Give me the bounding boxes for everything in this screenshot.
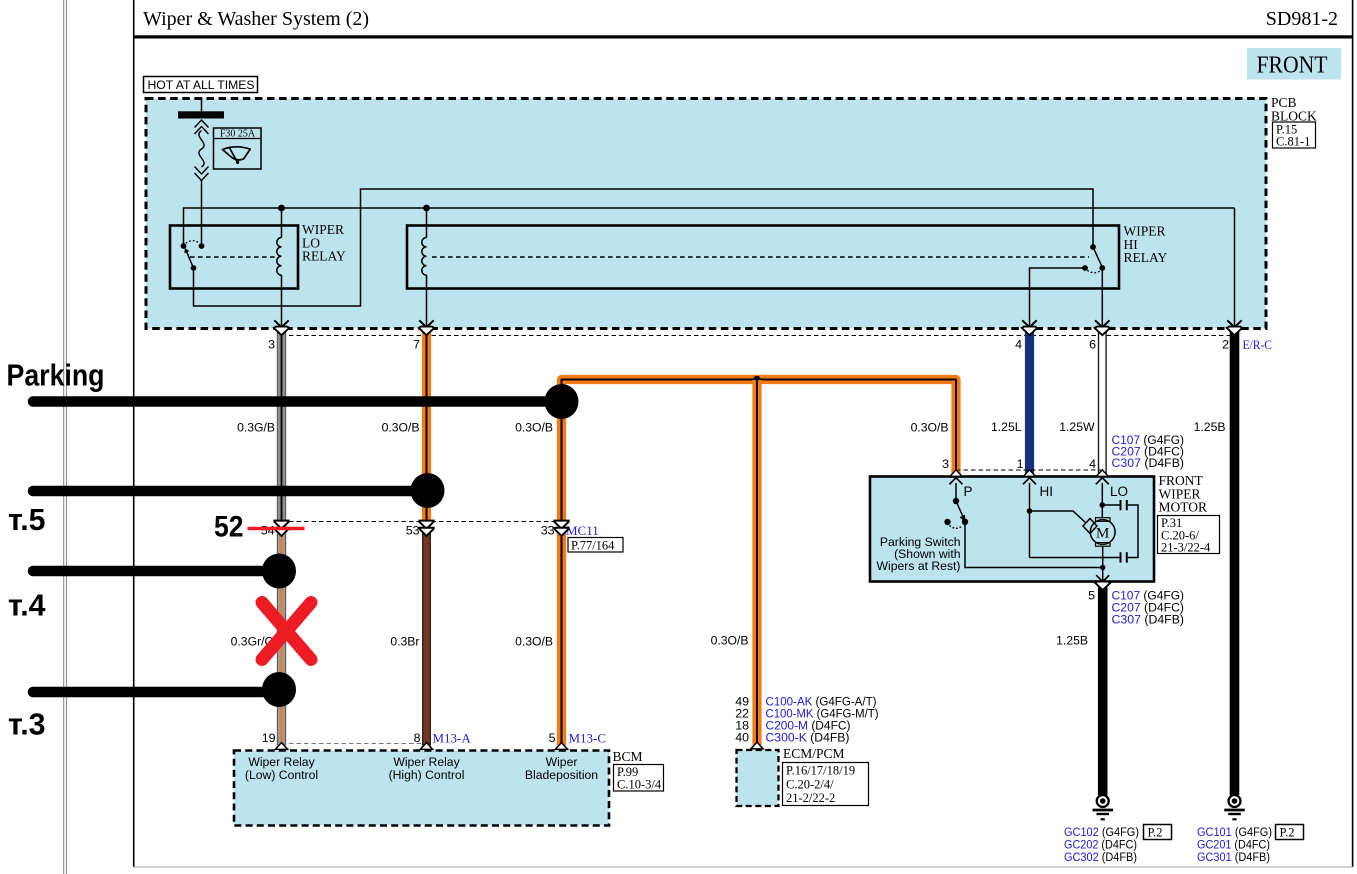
svg-text:HOT AT ALL TIMES: HOT AT ALL TIMES xyxy=(148,78,255,92)
svg-text:Wiper Relay: Wiper Relay xyxy=(393,755,460,769)
svg-text:0.3Br: 0.3Br xyxy=(390,635,419,649)
svg-text:P: P xyxy=(964,484,973,499)
svg-text:RELAY: RELAY xyxy=(1124,250,1168,265)
svg-text:M: M xyxy=(1096,526,1109,542)
svg-text:1.25W: 1.25W xyxy=(1059,420,1095,434)
svg-text:BCM: BCM xyxy=(613,749,643,764)
svg-text:4: 4 xyxy=(1015,338,1022,352)
svg-text:C.81-1: C.81-1 xyxy=(1276,135,1310,149)
svg-text:Bladeposition: Bladeposition xyxy=(525,768,598,782)
svg-text:0.3G/B: 0.3G/B xyxy=(237,421,275,435)
svg-text:C307 (D4FB): C307 (D4FB) xyxy=(1112,613,1185,627)
svg-text:33: 33 xyxy=(541,524,555,538)
svg-text:Wiper: Wiper xyxy=(546,755,578,769)
svg-text:M13-C: M13-C xyxy=(569,731,607,746)
svg-text:BLOCK: BLOCK xyxy=(1271,109,1317,124)
svg-text:8: 8 xyxy=(414,731,421,745)
svg-text:Wiper & Washer System (2): Wiper & Washer System (2) xyxy=(143,8,369,30)
svg-text:C.10-3/4: C.10-3/4 xyxy=(617,778,662,792)
svg-text:E/R-C: E/R-C xyxy=(1243,337,1273,352)
svg-text:7: 7 xyxy=(413,338,420,352)
svg-text:3: 3 xyxy=(942,457,949,471)
svg-text:1.25B: 1.25B xyxy=(1056,634,1088,648)
svg-text:C.20-2/4/: C.20-2/4/ xyxy=(786,778,834,792)
svg-text:1: 1 xyxy=(1017,457,1024,471)
svg-text:1.25B: 1.25B xyxy=(1194,420,1226,434)
svg-text:P.2: P.2 xyxy=(1148,826,1163,840)
svg-text:FRONT: FRONT xyxy=(1257,52,1328,79)
svg-text:40: 40 xyxy=(735,731,749,745)
svg-text:LO: LO xyxy=(1110,484,1128,499)
svg-text:P.77/164: P.77/164 xyxy=(571,539,615,553)
svg-text:M13-A: M13-A xyxy=(433,731,472,746)
svg-text:MOTOR: MOTOR xyxy=(1159,500,1208,515)
svg-text:ECM/PCM: ECM/PCM xyxy=(783,746,845,761)
svg-text:(High) Control: (High) Control xyxy=(389,768,465,782)
svg-text:Wiper Relay: Wiper Relay xyxy=(248,755,315,769)
svg-text:5: 5 xyxy=(1088,589,1095,603)
svg-text:19: 19 xyxy=(262,731,276,745)
svg-text:0.3O/B: 0.3O/B xyxy=(515,635,553,649)
svg-text:21-2/22-2: 21-2/22-2 xyxy=(786,791,835,805)
svg-text:6: 6 xyxy=(1089,338,1096,352)
svg-text:MC11: MC11 xyxy=(566,523,599,538)
svg-text:0.3O/B: 0.3O/B xyxy=(711,634,749,648)
svg-text:Wipers at Rest): Wipers at Rest) xyxy=(877,559,961,573)
svg-text:SD981-2: SD981-2 xyxy=(1266,8,1338,30)
svg-text:F30 25A: F30 25A xyxy=(220,129,256,140)
svg-text:GC302 (D4FB): GC302 (D4FB) xyxy=(1064,850,1137,864)
svg-text:3: 3 xyxy=(268,338,275,352)
svg-text:0.3O/B: 0.3O/B xyxy=(911,421,949,435)
svg-text:т.4: т.4 xyxy=(8,588,46,623)
svg-text:53: 53 xyxy=(406,524,420,538)
svg-text:GC301 (D4FB): GC301 (D4FB) xyxy=(1197,850,1270,864)
svg-text:1.25L: 1.25L xyxy=(991,420,1022,434)
svg-text:RELAY: RELAY xyxy=(302,249,346,264)
svg-text:Parking: Parking xyxy=(7,358,105,393)
svg-text:21-3/22-4: 21-3/22-4 xyxy=(1161,541,1211,555)
svg-text:4: 4 xyxy=(1089,457,1096,471)
svg-text:HI: HI xyxy=(1040,484,1054,499)
svg-text:(Low) Control: (Low) Control xyxy=(245,768,318,782)
svg-text:P.16/17/18/19: P.16/17/18/19 xyxy=(786,764,855,778)
svg-text:5: 5 xyxy=(549,731,556,745)
svg-text:C307 (D4FB): C307 (D4FB) xyxy=(1112,456,1185,470)
svg-text:т.3: т.3 xyxy=(8,707,46,742)
svg-text:2: 2 xyxy=(1222,338,1229,352)
svg-text:C300-K (D4FB): C300-K (D4FB) xyxy=(766,731,850,745)
svg-text:52: 52 xyxy=(214,511,244,544)
svg-text:0.3O/B: 0.3O/B xyxy=(382,421,420,435)
svg-text:P.2: P.2 xyxy=(1280,826,1295,840)
svg-text:54: 54 xyxy=(261,524,275,538)
svg-text:0.3O/B: 0.3O/B xyxy=(515,421,553,435)
svg-text:т.5: т.5 xyxy=(8,502,46,537)
